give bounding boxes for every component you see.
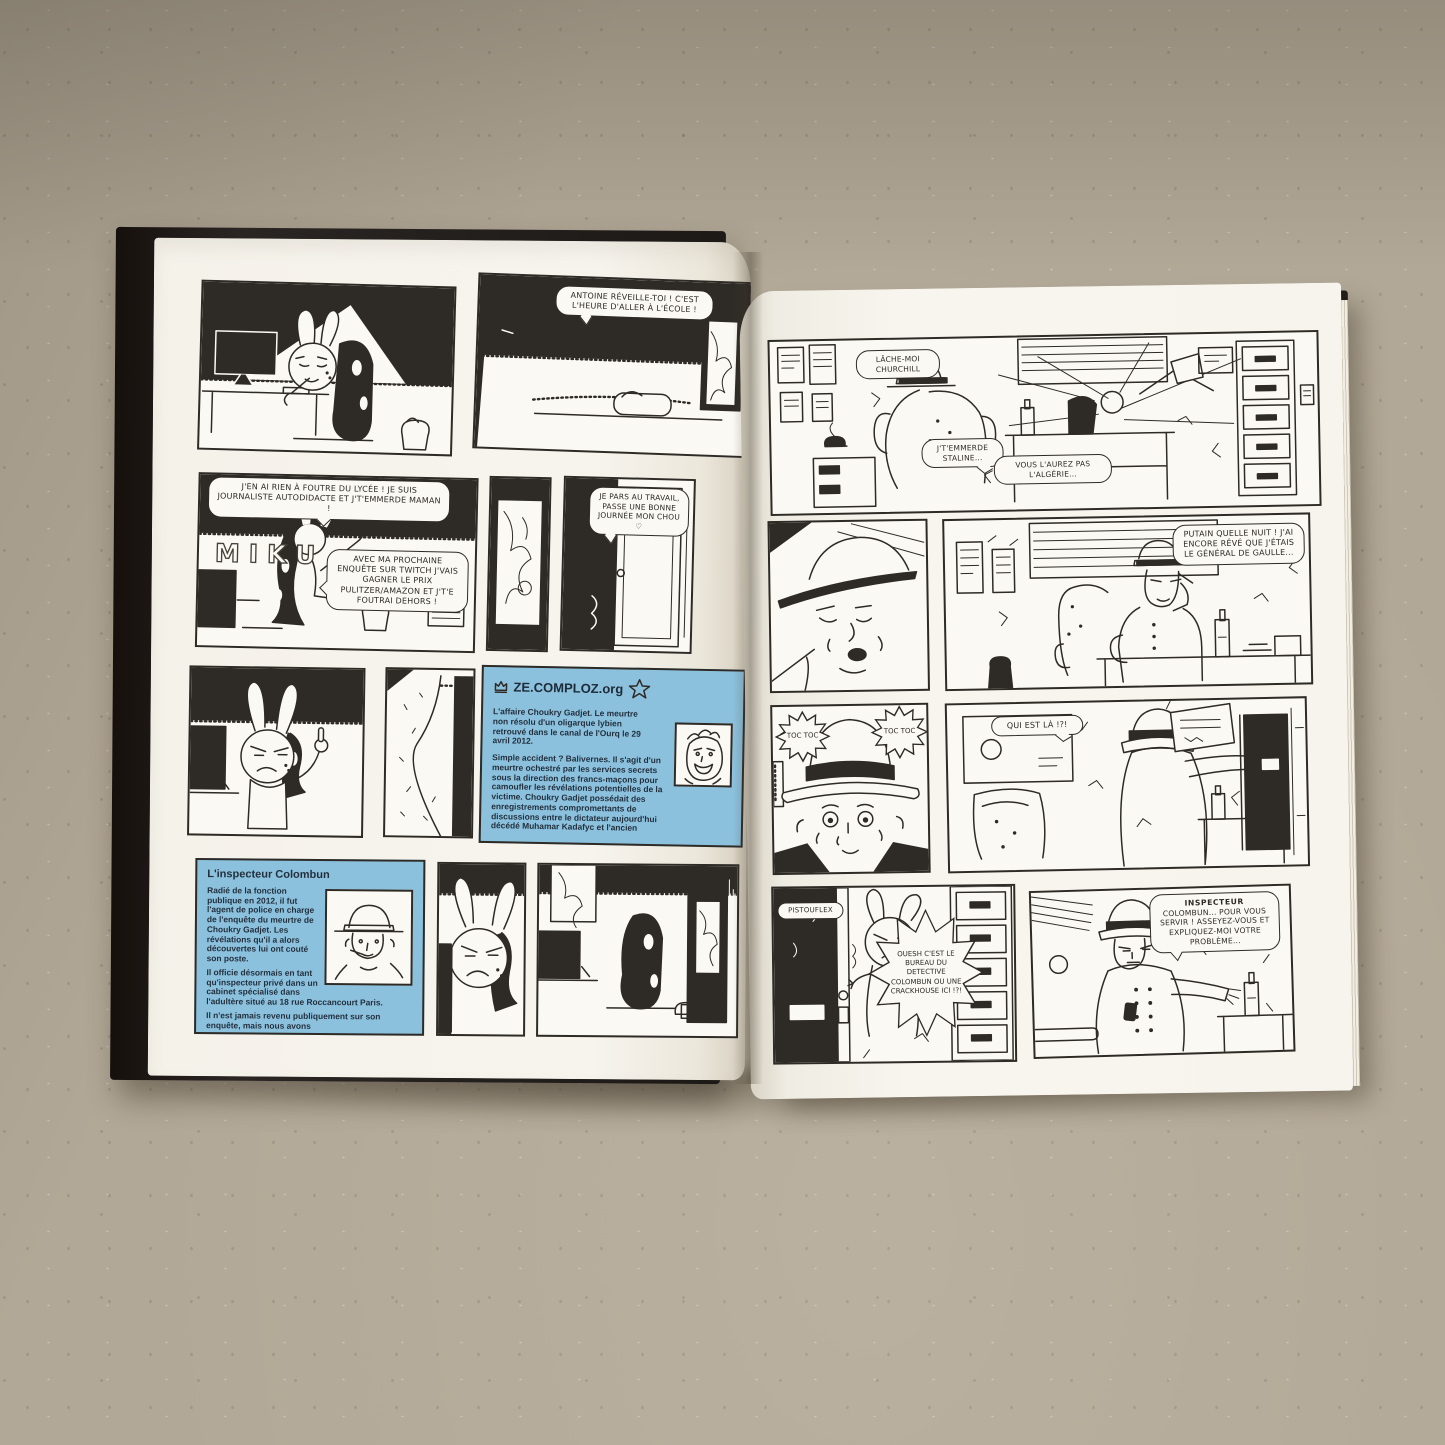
speech-text: COLOMBUN... POUR VOUS SERVIR ! ASSEYEZ-V…: [1160, 906, 1270, 946]
sfx-text: TOC TOC: [783, 719, 823, 754]
panel-who-is-there: QUI EST LÀ !?!: [945, 696, 1310, 873]
speech-bubble: PUTAIN QUELLE NUIT ! J'AI ENCORE RÊVÉ QU…: [1172, 523, 1305, 566]
panel-comploz-website: ZE.COMPLOZ.org L'affaire Choukry Gadjet.…: [479, 665, 746, 848]
panel-grumpy-face: [436, 862, 526, 1037]
panel-sleep-face: [767, 519, 930, 693]
speech-bubble: QUI EST LÀ !?!: [991, 715, 1083, 737]
comploz-paragraph: L'affaire Choukry Gadjet. Le meurtre non…: [492, 707, 643, 749]
colombun-portrait: [324, 889, 413, 986]
speech-bubble: INSPECTEUR COLOMBUN... POUR VOUS SERVIR …: [1149, 891, 1281, 953]
star-icon: [628, 679, 650, 699]
gadjet-portrait: [674, 722, 733, 787]
toc-toc-burst: TOC TOC: [870, 705, 929, 760]
panel-empty-room: [536, 863, 739, 1039]
speech-bubble: JE PARS AU TRAVAIL, PASSE UNE BONNE JOUR…: [588, 486, 689, 537]
inspector-paragraph: Il n'est jamais revenu publiquement sur …: [206, 1011, 412, 1032]
speech-bubble: J'T'EMMERDE STALINE...: [921, 438, 1004, 469]
panel-inspector-intro: INSPECTEUR COLOMBUN... POUR VOUS SERVIR …: [1029, 884, 1296, 1059]
comic-page-left: ANTOINE RÉVEILLE-TOI ! C'EST L'HEURE D'A…: [148, 238, 752, 1081]
door-sign: PISTOUFLEX: [777, 902, 843, 920]
photo-open-comic-book: { "scene": { "background_color": "#b2a89…: [0, 0, 1445, 1445]
panel-wakeup: ANTOINE RÉVEILLE-TOI ! C'EST L'HEURE D'A…: [472, 272, 751, 458]
sfx-text: TOC TOC: [879, 714, 920, 750]
comploz-site-name: ZE.COMPLOZ.org: [513, 679, 623, 696]
panel-hangover-desk: PUTAIN QUELLE NUIT ! J'AI ENCORE RÊVÉ QU…: [942, 512, 1313, 691]
panel-desk-night: [197, 280, 457, 457]
panel-office-morning: LÂCHE-MOI CHURCHILL J'T'EMMERDE STALINE.…: [767, 330, 1321, 516]
inspector-bio: L'inspecteur Colombun Radié de la foncti…: [196, 860, 423, 1036]
comploz-paragraph: Simple accident ? Balivernes. Il s'agit …: [491, 753, 664, 834]
comic-page-right: LÂCHE-MOI CHURCHILL J'T'EMMERDE STALINE.…: [739, 283, 1353, 1100]
panel-middle-finger: [187, 665, 366, 838]
crackhouse-burst: OUESH C'EST LE BUREAU DU DETECTIVE COLOM…: [867, 908, 984, 1037]
inspector-bio-title: L'inspecteur Colombun: [207, 868, 413, 882]
panel-inspector-bio: L'inspecteur Colombun Radié de la foncti…: [194, 858, 425, 1036]
comploz-header: ZE.COMPLOZ.org: [483, 667, 743, 701]
speech-text: OUESH C'EST LE BUREAU DU DETECTIVE COLOM…: [885, 930, 967, 1015]
miku-poster-text: MIKU: [215, 538, 325, 569]
speech-bubble: AVEC MA PROCHAINE ENQUÊTE SUR TWITCH J'V…: [326, 549, 469, 613]
speech-bubble: VOUS L'AUREZ PAS L'ALGÉRIE...: [994, 454, 1113, 485]
panel-poster: [486, 476, 552, 652]
speech-bubble: LÂCHE-MOI CHURCHILL: [856, 349, 941, 380]
crown-icon: [493, 679, 508, 693]
speech-bubble: J'EN AI RIEN À FOUTRE DU LYCÉE ! JE SUIS…: [208, 476, 451, 522]
panel-closeup-leg: [383, 667, 476, 838]
panel-toc-toc: TOC TOC TOC TOC: [770, 703, 931, 875]
toc-toc-burst: TOC TOC: [774, 710, 831, 763]
panel-crackhouse: PISTOUFLEX OUESH C'EST LE BUREAU DU DETE…: [771, 884, 1017, 1065]
panel-rant: MIKU J'EN AI RIEN À FOUTRE DU LYCÉE ! JE…: [195, 472, 479, 653]
panel-doorway: JE PARS AU TRAVAIL, PASSE UNE BONNE JOUR…: [560, 476, 696, 654]
speech-bubble: ANTOINE RÉVEILLE-TOI ! C'EST L'HEURE D'A…: [555, 285, 714, 321]
